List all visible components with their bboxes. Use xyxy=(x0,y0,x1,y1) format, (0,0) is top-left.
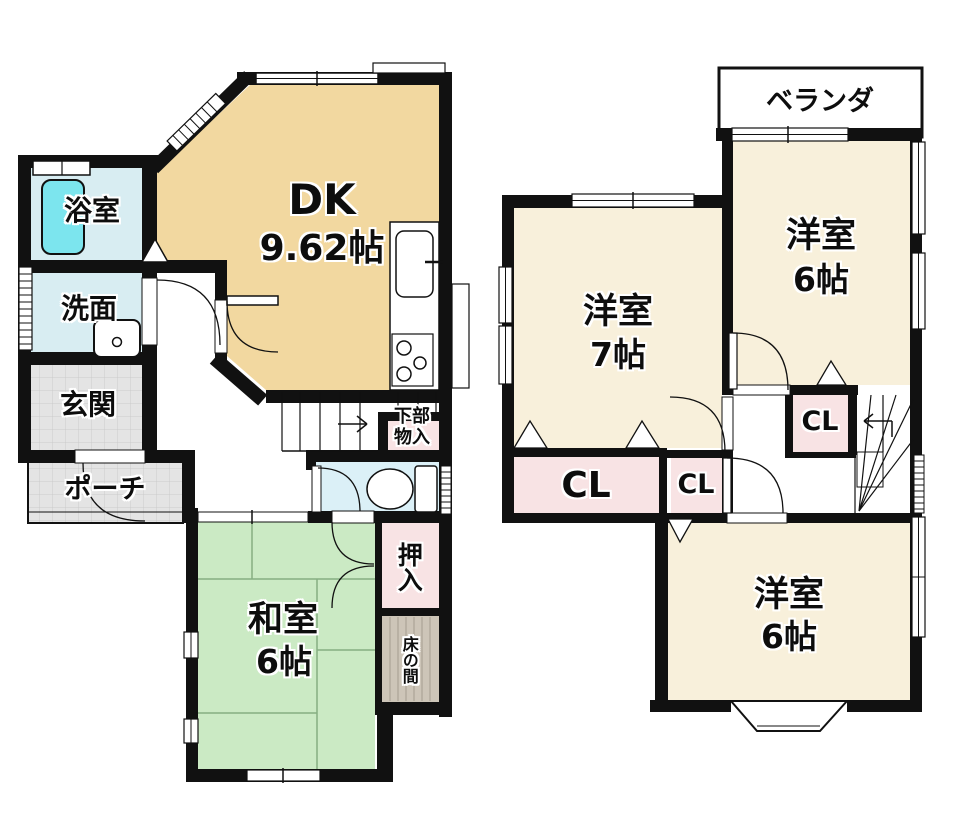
w6-lower-bay-window xyxy=(731,701,847,731)
w6-upper-door-leaf xyxy=(729,333,737,389)
toilet-fixture xyxy=(367,466,437,512)
w6-upper-door-opening xyxy=(733,385,790,395)
room-western7 xyxy=(514,208,722,448)
bathtub xyxy=(42,180,84,254)
room-genkan xyxy=(31,365,142,450)
wash-louver-window xyxy=(19,267,32,350)
room-western6-lower xyxy=(668,523,910,700)
washitsu-sliding-opening xyxy=(198,510,308,524)
veranda xyxy=(719,68,922,137)
kitchen-sink xyxy=(396,231,433,297)
closet-hall xyxy=(671,458,722,513)
wash-door-arc xyxy=(157,280,220,345)
counter-extension xyxy=(452,284,469,388)
room-western6-upper xyxy=(733,141,910,385)
toilet-door-leaf xyxy=(312,466,321,512)
room-oshiire xyxy=(382,522,439,608)
stairs-up-arrow xyxy=(338,416,367,432)
wash-basin xyxy=(94,320,140,357)
closet-upper xyxy=(792,392,848,452)
closet-main xyxy=(514,457,659,513)
dk-door-opening xyxy=(215,300,227,353)
w6-lower-door-leaf xyxy=(723,458,731,513)
floor2-rooms xyxy=(514,68,922,700)
washitsu-bottom-window xyxy=(247,768,320,783)
dk-shutter-box xyxy=(373,63,445,73)
dk-door-leaf xyxy=(227,296,278,305)
veranda-window xyxy=(732,126,848,143)
floor-plan-drawing xyxy=(0,0,977,821)
toilet-window xyxy=(441,466,451,514)
room-porch xyxy=(28,463,183,523)
w6-lower-door-arc xyxy=(727,458,783,513)
w6-lower-door-opening xyxy=(727,513,787,523)
w7-top-window xyxy=(572,192,694,209)
floor-plan: DK 9.62帖 浴室 洗面 玄関 ポーチ 和室 6帖 押入 床の間 下部 物入… xyxy=(0,0,977,821)
dk-top-window xyxy=(256,71,378,86)
entrance-door-opening xyxy=(75,450,145,463)
w6-lower-right-window xyxy=(910,517,925,637)
w7-left-windows xyxy=(499,267,512,384)
wash-door-opening xyxy=(142,278,157,345)
stairs2f-window xyxy=(914,455,924,513)
kitchen-counter xyxy=(390,222,443,390)
stairs-2f xyxy=(855,395,913,513)
washitsu-door-opening xyxy=(332,511,374,523)
w7-door-opening xyxy=(722,397,733,450)
